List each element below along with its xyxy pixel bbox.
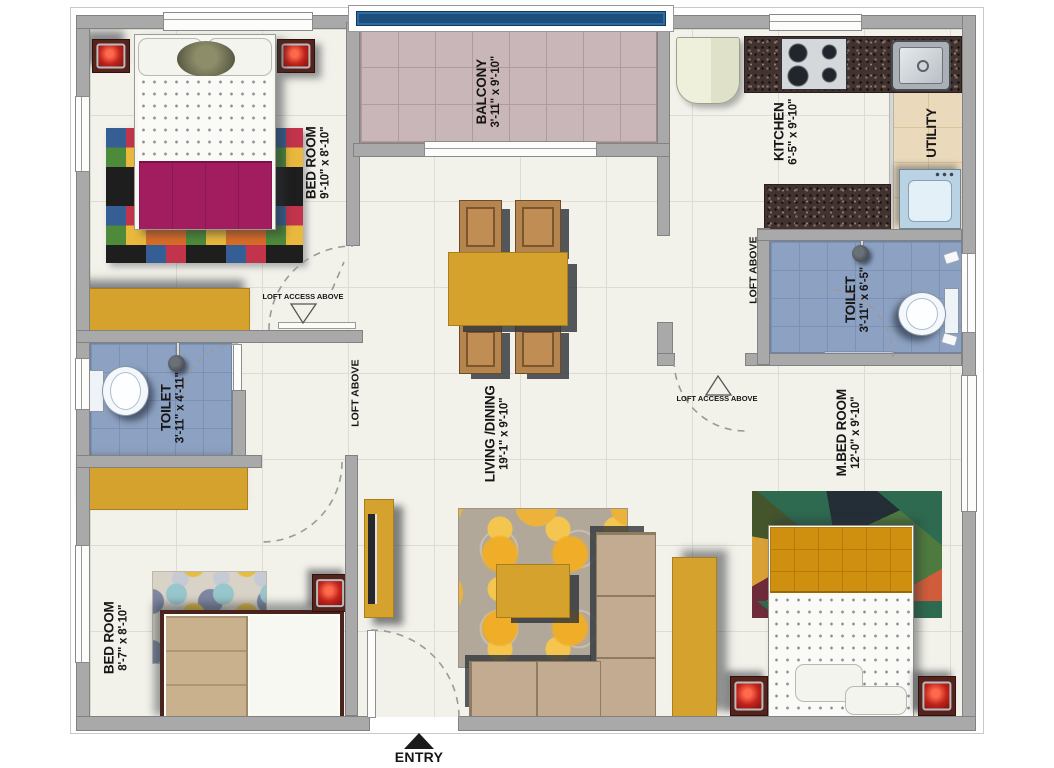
room-label-living-dining: LIVING /DINING19'-1" x 9'-10" — [474, 378, 520, 490]
entry-door-arc — [371, 630, 459, 717]
room-label-toilet-left: TOILET3'-11" x 4'-11" — [150, 360, 196, 455]
room-label-balcony: BALCONY3'-11" x 9'-10" — [466, 42, 512, 142]
entry-label: ENTRY — [391, 748, 447, 765]
room-label-toilet-right: TOILET3'-11" x 6'-5" — [836, 250, 880, 350]
room-label-bedroom3: BED ROOM8'-7" x 8'-10" — [94, 592, 138, 684]
loft-access-label-right: LOFT ACCESS ABOVE — [678, 392, 756, 404]
loft-above-label-right: LOFT ABOVE — [742, 230, 766, 310]
entry-arrow-icon — [404, 733, 434, 749]
room-label-bedroom1: BED ROOM9'-10" x 8'-10" — [294, 88, 342, 238]
loft-above-label-left: LOFT ABOVE — [344, 352, 368, 434]
room-label-utility: UTILITY — [916, 92, 948, 174]
room-label-master-bedroom: M.BED ROOM12'-0" x 9'-10" — [826, 383, 872, 483]
room-label-kitchen: KITCHEN6'-5" x 9'-10" — [763, 82, 809, 182]
bedroom1-door-arc — [269, 246, 353, 330]
bedroom3-door-arc — [262, 462, 342, 542]
floor-plan: BED ROOM9'-10" x 8'-10" BALCONY3'-11" x … — [0, 0, 1054, 768]
loft-access-label-left: LOFT ACCESS ABOVE — [262, 290, 344, 302]
loft-access-triangle-left — [291, 304, 316, 323]
loft-access-tick — [332, 262, 344, 290]
